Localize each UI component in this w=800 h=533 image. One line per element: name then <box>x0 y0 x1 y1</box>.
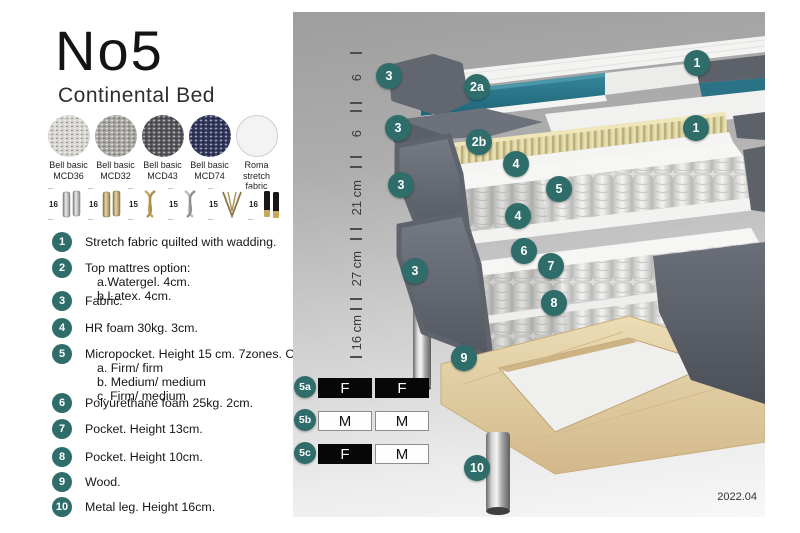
callout-badge: 3 <box>402 258 428 284</box>
fabric-swatch-circle <box>189 115 231 157</box>
ruler-segment: 6 <box>343 52 369 104</box>
fabric-swatch: Roma stretch fabric <box>234 115 279 192</box>
ruler-label: 16 cm <box>349 315 364 350</box>
list-item-number: 10 <box>52 497 72 517</box>
list-item-number: 4 <box>52 318 72 338</box>
firmness-cell: M <box>318 411 372 431</box>
firmness-row-badge: 5b <box>294 409 316 431</box>
leg-option: 16 <box>247 186 284 222</box>
list-item-text: Pocket. Height 10cm. <box>85 447 203 467</box>
ruler-tick <box>350 238 362 240</box>
firmness-row: F F <box>318 378 429 398</box>
product-sheet: No5 Continental Bed Bell basic MCD36 Bel… <box>0 0 800 533</box>
ruler-tick <box>350 228 362 230</box>
list-item-text: HR foam 30kg. 3cm. <box>85 318 198 338</box>
list-item-number: 1 <box>52 232 72 252</box>
callout-badge: 2a <box>464 74 490 100</box>
list-item-number: 2 <box>52 258 72 278</box>
list-item-number: 5 <box>52 344 72 364</box>
firmness-cell: F <box>318 444 372 464</box>
leg-twist-silver-icon <box>180 189 202 219</box>
list-item-number: 7 <box>52 419 72 439</box>
page-title: No5 <box>55 18 164 83</box>
ruler-label: 27 cm <box>349 251 364 286</box>
list-item-text: Polyurethane foam 25kg. 2cm. <box>85 393 253 413</box>
fabric-swatches: Bell basic MCD36 Bell basic MCD32 Bell b… <box>46 115 279 192</box>
list-item-number: 9 <box>52 472 72 492</box>
callout-badge: 5 <box>546 176 572 202</box>
leg-cylinder-gold-icon <box>100 189 124 219</box>
fabric-swatch-label: Bell basic MCD32 <box>96 160 135 181</box>
firmness-row-badge: 5a <box>294 376 316 398</box>
list-item: 3 Fabric. <box>52 291 123 311</box>
fabric-swatch-circle <box>48 115 90 157</box>
firmness-row-badge: 5c <box>294 442 316 464</box>
leg-hairpin-icon <box>220 189 244 219</box>
callout-badge: 3 <box>376 63 402 89</box>
list-item: 4 HR foam 30kg. 3cm. <box>52 318 198 338</box>
ruler-tick <box>350 102 362 104</box>
version-label: 2022.04 <box>689 491 757 503</box>
list-item-text: Fabric. <box>85 291 123 311</box>
fabric-swatch: Bell basic MCD32 <box>93 115 138 192</box>
callout-badge: 4 <box>505 203 531 229</box>
fabric-swatch: Bell basic MCD74 <box>187 115 232 192</box>
leg-option: 16 <box>47 186 84 222</box>
list-item: 8 Pocket. Height 10cm. <box>52 447 203 467</box>
ruler-tick <box>350 52 362 54</box>
leg-option: 16 <box>87 186 124 222</box>
list-item-number: 3 <box>52 291 72 311</box>
callout-badge: 6 <box>511 238 537 264</box>
callout-badge: 9 <box>451 345 477 371</box>
fabric-swatch-circle <box>142 115 184 157</box>
ruler-label: 6 <box>349 130 364 137</box>
fabric-swatch-circle <box>95 115 137 157</box>
leg-cylinder-silver-icon <box>60 189 84 219</box>
firmness-cell: F <box>318 378 372 398</box>
list-item-text: Wood. <box>85 472 121 492</box>
fabric-swatch-label: Bell basic MCD74 <box>190 160 229 181</box>
ruler-segment: 27 cm <box>343 238 369 300</box>
ruler-label: 6 <box>349 74 364 81</box>
list-item-text: Stretch fabric quilted with wadding. <box>85 232 276 252</box>
leg-options: 16 16 15 <box>47 186 284 222</box>
leg-option: 15 <box>127 186 164 222</box>
ruler-tick <box>350 308 362 310</box>
callout-badge: 1 <box>684 50 710 76</box>
list-item: 7 Pocket. Height 13cm. <box>52 419 203 439</box>
page-subtitle: Continental Bed <box>58 84 215 108</box>
firmness-row: F M <box>318 444 429 464</box>
list-item-text: Metal leg. Height 16cm. <box>85 497 215 517</box>
leg-option: 15 <box>167 186 204 222</box>
callout-badge: 4 <box>503 151 529 177</box>
fabric-swatch: Bell basic MCD43 <box>140 115 185 192</box>
ruler-label: 21 cm <box>349 180 364 215</box>
ruler-segment: 21 cm <box>343 166 369 230</box>
list-item-text: Pocket. Height 13cm. <box>85 419 203 439</box>
ruler-tick <box>350 298 362 300</box>
leg-option: 15 <box>207 186 244 222</box>
measurement-ruler: 6 6 21 cm 27 cm 16 cm <box>343 52 369 358</box>
fabric-swatch-label: Bell basic MCD36 <box>49 160 88 181</box>
callout-badge: 8 <box>541 290 567 316</box>
list-item: 10 Metal leg. Height 16cm. <box>52 497 215 517</box>
firmness-cell: F <box>375 378 429 398</box>
callout-badge: 3 <box>388 172 414 198</box>
ruler-tick <box>350 166 362 168</box>
list-item-number: 6 <box>52 393 72 413</box>
ruler-tick <box>350 356 362 358</box>
leg-black-gold-icon <box>260 189 282 219</box>
list-item: 9 Wood. <box>52 472 121 492</box>
ruler-segment: 6 <box>343 110 369 158</box>
fabric-swatch-label: Bell basic MCD43 <box>143 160 182 181</box>
ruler-segment: 16 cm <box>343 308 369 358</box>
callout-badge: 7 <box>538 253 564 279</box>
list-item: 6 Polyurethane foam 25kg. 2cm. <box>52 393 253 413</box>
fabric-swatch-circle <box>236 115 278 157</box>
leg-twist-gold-icon <box>140 189 162 219</box>
fabric-swatch: Bell basic MCD36 <box>46 115 91 192</box>
firmness-cell: M <box>375 444 429 464</box>
callout-badge: 3 <box>385 115 411 141</box>
firmness-row: M M <box>318 411 429 431</box>
diagram-panel: 6 6 21 cm 27 cm 16 cm <box>293 12 765 517</box>
firmness-cell: M <box>375 411 429 431</box>
callout-badge: 10 <box>464 455 490 481</box>
callout-badge: 1 <box>683 115 709 141</box>
list-item-number: 8 <box>52 447 72 467</box>
callout-badge: 2b <box>466 129 492 155</box>
list-item: 1 Stretch fabric quilted with wadding. <box>52 232 276 252</box>
ruler-tick <box>350 156 362 158</box>
ruler-tick <box>350 110 362 112</box>
